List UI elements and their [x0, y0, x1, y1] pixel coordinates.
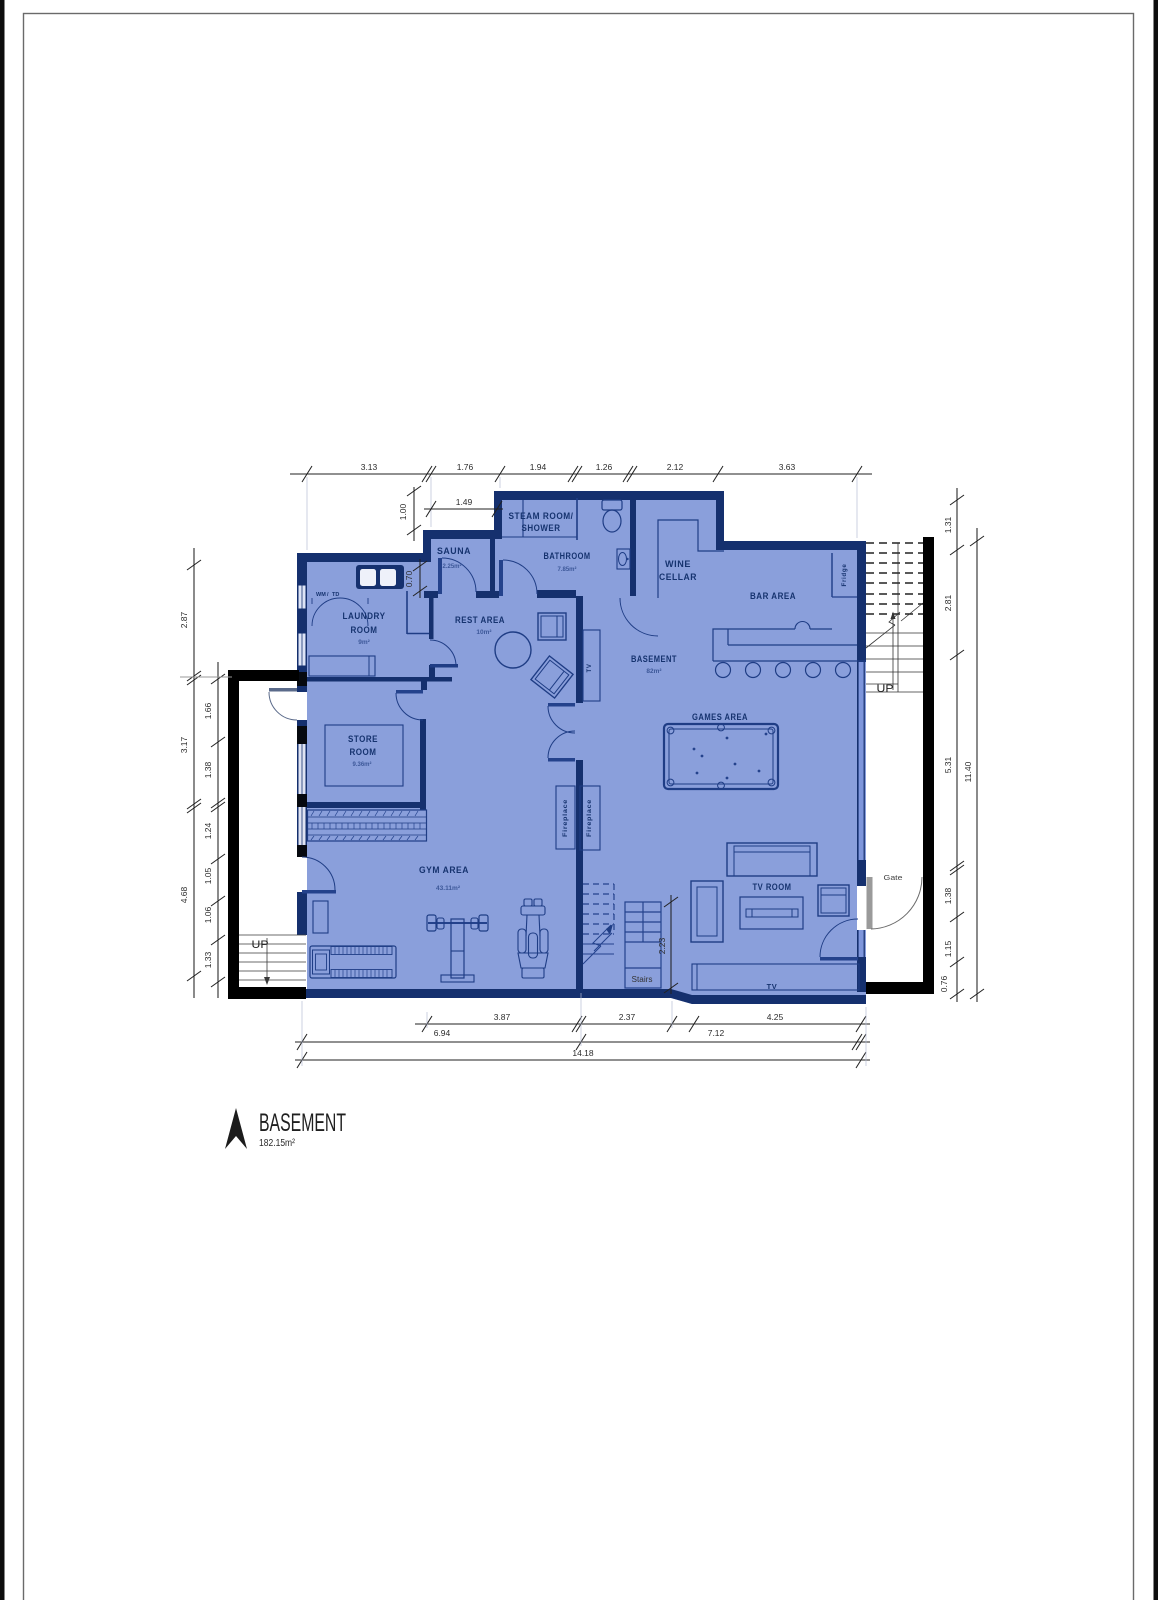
- svg-text:BASEMENT: BASEMENT: [259, 1109, 346, 1137]
- svg-text:TD: TD: [332, 592, 339, 598]
- svg-text:2.81: 2.81: [943, 594, 953, 611]
- svg-text:BAR AREA: BAR AREA: [750, 591, 796, 602]
- svg-text:WM: WM: [316, 592, 326, 598]
- svg-text:1.00: 1.00: [398, 503, 408, 520]
- svg-text:182.15m²: 182.15m²: [259, 1138, 296, 1149]
- svg-text:ROOM: ROOM: [350, 747, 377, 758]
- svg-text:4.68: 4.68: [179, 886, 189, 903]
- svg-text:7.12: 7.12: [708, 1028, 725, 1038]
- svg-text:1.05: 1.05: [203, 867, 213, 884]
- svg-text:GYM AREA: GYM AREA: [419, 865, 469, 876]
- svg-text:6.94: 6.94: [434, 1028, 451, 1038]
- svg-text:2.87: 2.87: [179, 611, 189, 628]
- svg-text:2.25m²: 2.25m²: [443, 563, 463, 570]
- svg-text:1.76: 1.76: [457, 462, 474, 472]
- svg-text:2.23: 2.23: [657, 937, 667, 954]
- svg-text:Fireplace: Fireplace: [586, 799, 593, 837]
- svg-text:3.13: 3.13: [361, 462, 378, 472]
- svg-text:BATHROOM: BATHROOM: [544, 551, 591, 562]
- svg-text:STORE: STORE: [348, 734, 378, 745]
- svg-text:5.31: 5.31: [943, 756, 953, 773]
- svg-text:3.17: 3.17: [179, 736, 189, 753]
- svg-text:0.70: 0.70: [404, 570, 414, 587]
- svg-text:11.40: 11.40: [963, 761, 973, 782]
- svg-text:9m²: 9m²: [358, 639, 370, 646]
- svg-text:ROOM: ROOM: [351, 625, 378, 636]
- svg-text:WINE: WINE: [665, 559, 691, 570]
- svg-text:1.38: 1.38: [203, 761, 213, 778]
- svg-text:SAUNA: SAUNA: [437, 546, 471, 557]
- svg-text:3.87: 3.87: [494, 1012, 511, 1022]
- svg-text:TV: TV: [587, 664, 593, 673]
- svg-text:GAMES AREA: GAMES AREA: [692, 712, 748, 723]
- svg-text:0.76: 0.76: [939, 975, 949, 992]
- svg-text:4.25: 4.25: [767, 1012, 784, 1022]
- svg-text:UP: UP: [252, 939, 269, 951]
- svg-text:CELLAR: CELLAR: [659, 572, 697, 583]
- svg-text:REST AREA: REST AREA: [455, 615, 505, 626]
- svg-text:Stairs: Stairs: [632, 975, 653, 984]
- svg-text:2.37: 2.37: [619, 1012, 636, 1022]
- svg-text:1.24: 1.24: [203, 822, 213, 839]
- svg-text:1.33: 1.33: [203, 951, 213, 968]
- svg-text:BASEMENT: BASEMENT: [631, 654, 677, 665]
- svg-text:1.06: 1.06: [203, 906, 213, 923]
- svg-text:Gate: Gate: [884, 873, 903, 882]
- svg-text:TV: TV: [767, 982, 778, 991]
- svg-text:SHOWER: SHOWER: [522, 523, 561, 534]
- svg-text:1.38: 1.38: [943, 887, 953, 904]
- svg-text:LAUNDRY: LAUNDRY: [343, 611, 386, 622]
- svg-text:TV ROOM: TV ROOM: [753, 882, 792, 893]
- svg-text:STEAM ROOM/: STEAM ROOM/: [509, 511, 574, 522]
- svg-text:9.36m²: 9.36m²: [353, 761, 373, 768]
- svg-text:14.18: 14.18: [572, 1048, 594, 1058]
- svg-text:Fridge: Fridge: [842, 563, 848, 586]
- svg-text:1.26: 1.26: [596, 462, 613, 472]
- svg-text:1.66: 1.66: [203, 702, 213, 719]
- svg-text:82m²: 82m²: [646, 668, 662, 675]
- svg-text:3.63: 3.63: [779, 462, 796, 472]
- svg-text:1.49: 1.49: [456, 497, 473, 507]
- svg-text:2.12: 2.12: [667, 462, 684, 472]
- svg-text:1.15: 1.15: [943, 940, 953, 957]
- svg-text:UP: UP: [877, 683, 894, 695]
- svg-text:1.31: 1.31: [943, 516, 953, 533]
- svg-text:10m²: 10m²: [476, 629, 492, 636]
- svg-text:7.85m²: 7.85m²: [558, 566, 578, 573]
- svg-text:1.94: 1.94: [530, 462, 547, 472]
- svg-text:43.11m²: 43.11m²: [436, 885, 461, 892]
- svg-text:Fireplace: Fireplace: [562, 799, 569, 837]
